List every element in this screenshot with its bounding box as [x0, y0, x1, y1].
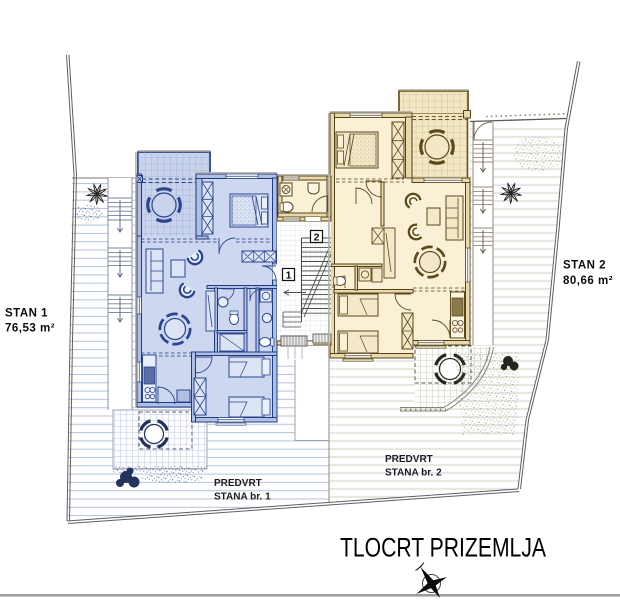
svg-text:STANA br. 1: STANA br. 1: [214, 492, 271, 503]
svg-text:PREDVRT: PREDVRT: [214, 478, 262, 489]
svg-text:TLOCRT PRIZEMLJA: TLOCRT PRIZEMLJA: [340, 533, 546, 563]
svg-text:76,53 m²: 76,53 m²: [5, 323, 55, 335]
svg-text:PREDVRT: PREDVRT: [385, 454, 433, 465]
svg-text:1: 1: [286, 269, 292, 281]
svg-text:80,66 m²: 80,66 m²: [563, 275, 613, 287]
svg-text:STAN 1: STAN 1: [5, 308, 48, 320]
svg-text:2: 2: [314, 231, 320, 243]
svg-text:STAN 2: STAN 2: [563, 260, 606, 272]
svg-text:STANA br. 2: STANA br. 2: [385, 468, 442, 479]
